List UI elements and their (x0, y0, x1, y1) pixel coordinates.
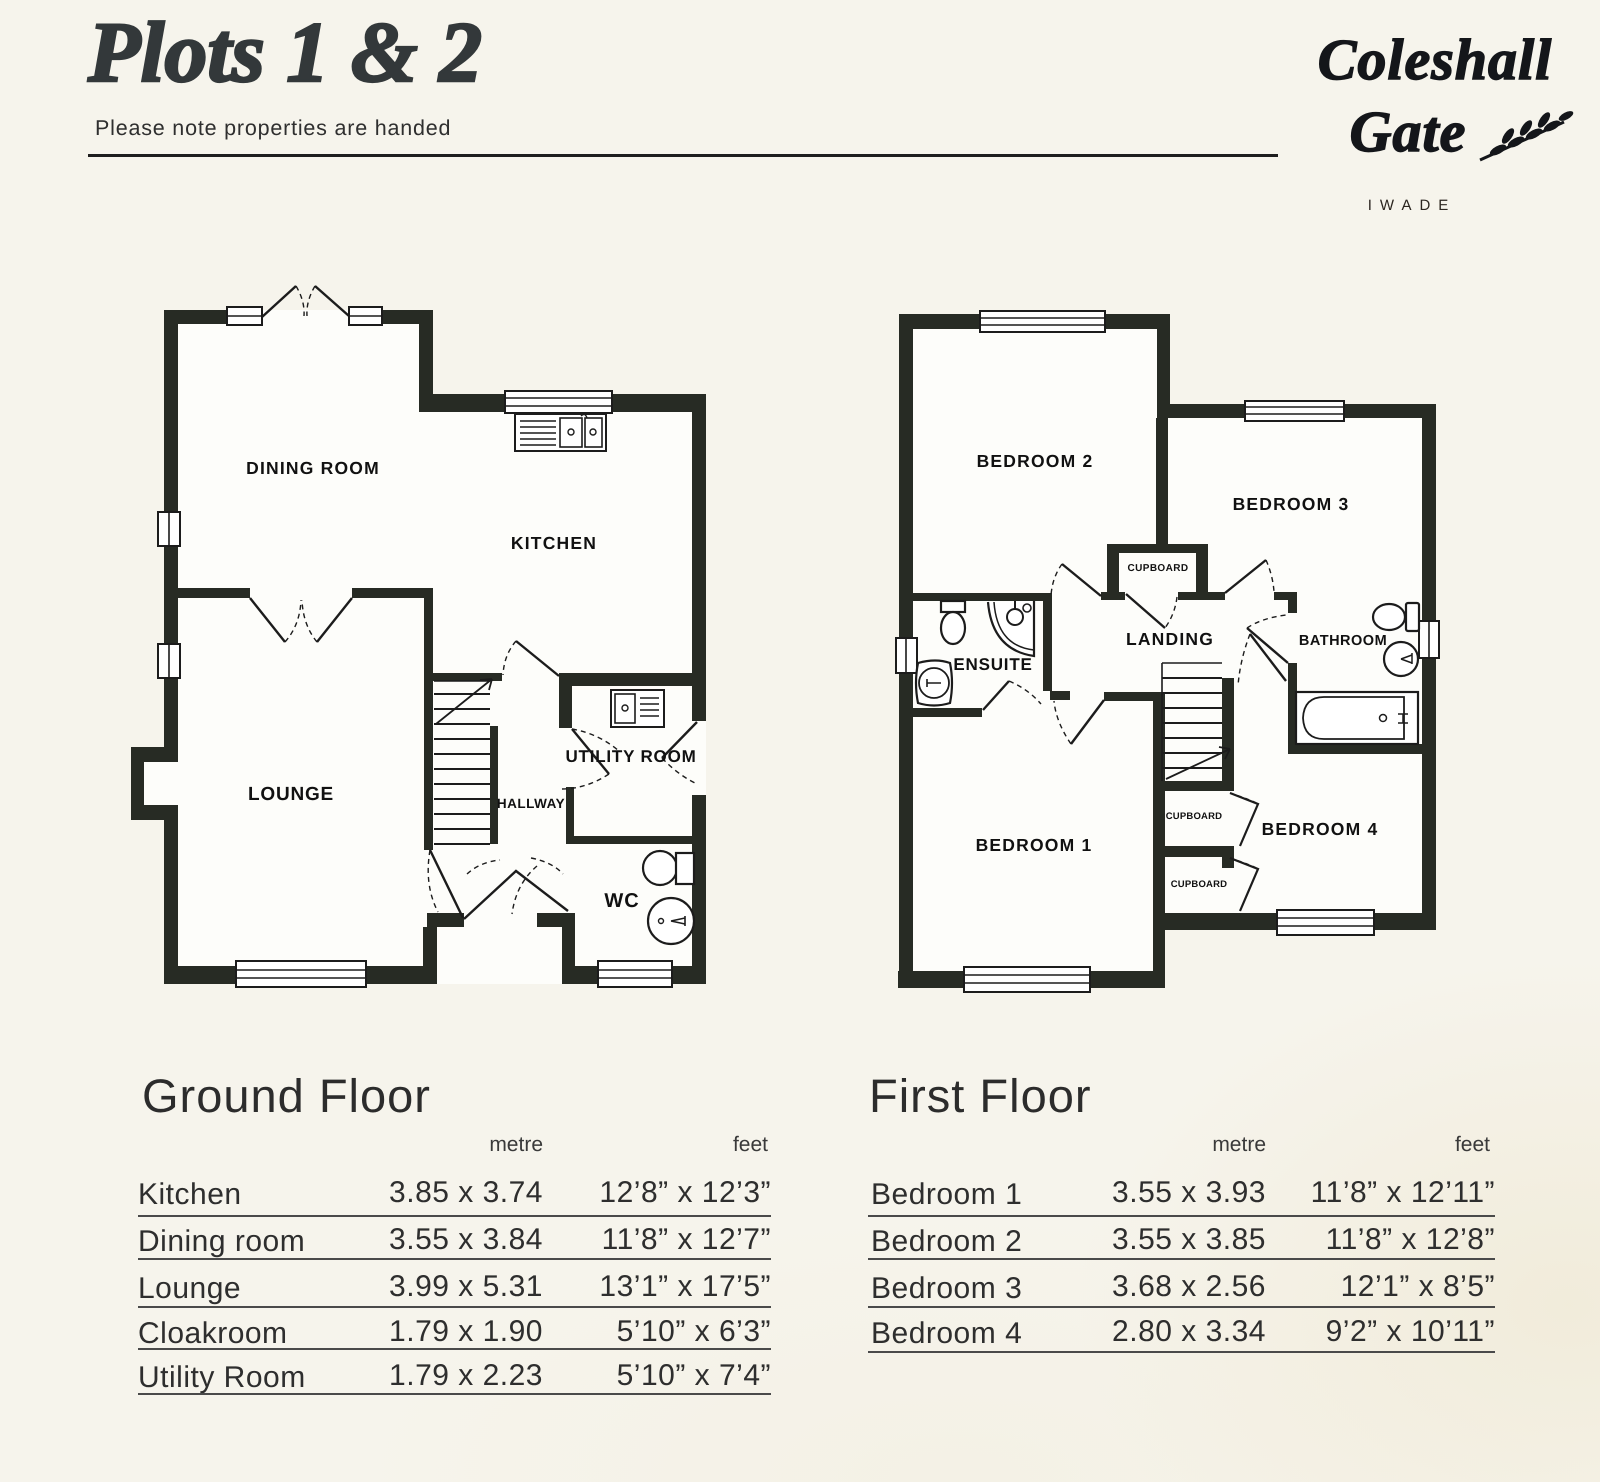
svg-text:CUPBOARD: CUPBOARD (1128, 563, 1189, 574)
svg-text:CUPBOARD: CUPBOARD (1166, 811, 1223, 822)
svg-text:LANDING: LANDING (1126, 629, 1214, 649)
svg-text:BEDROOM 2: BEDROOM 2 (977, 451, 1094, 471)
svg-text:DINING ROOM: DINING ROOM (246, 458, 380, 478)
svg-text:HALLWAY: HALLWAY (497, 796, 565, 811)
svg-text:UTILITY ROOM: UTILITY ROOM (565, 747, 696, 766)
svg-text:ENSUITE: ENSUITE (953, 655, 1032, 674)
svg-text:LOUNGE: LOUNGE (248, 784, 334, 805)
svg-text:CUPBOARD: CUPBOARD (1171, 879, 1228, 890)
svg-text:BEDROOM 4: BEDROOM 4 (1262, 819, 1379, 839)
svg-text:WC: WC (604, 890, 639, 912)
svg-text:BEDROOM 3: BEDROOM 3 (1233, 494, 1350, 514)
svg-text:KITCHEN: KITCHEN (511, 533, 597, 553)
svg-text:BEDROOM 1: BEDROOM 1 (976, 835, 1093, 855)
svg-text:BATHROOM: BATHROOM (1299, 633, 1387, 649)
